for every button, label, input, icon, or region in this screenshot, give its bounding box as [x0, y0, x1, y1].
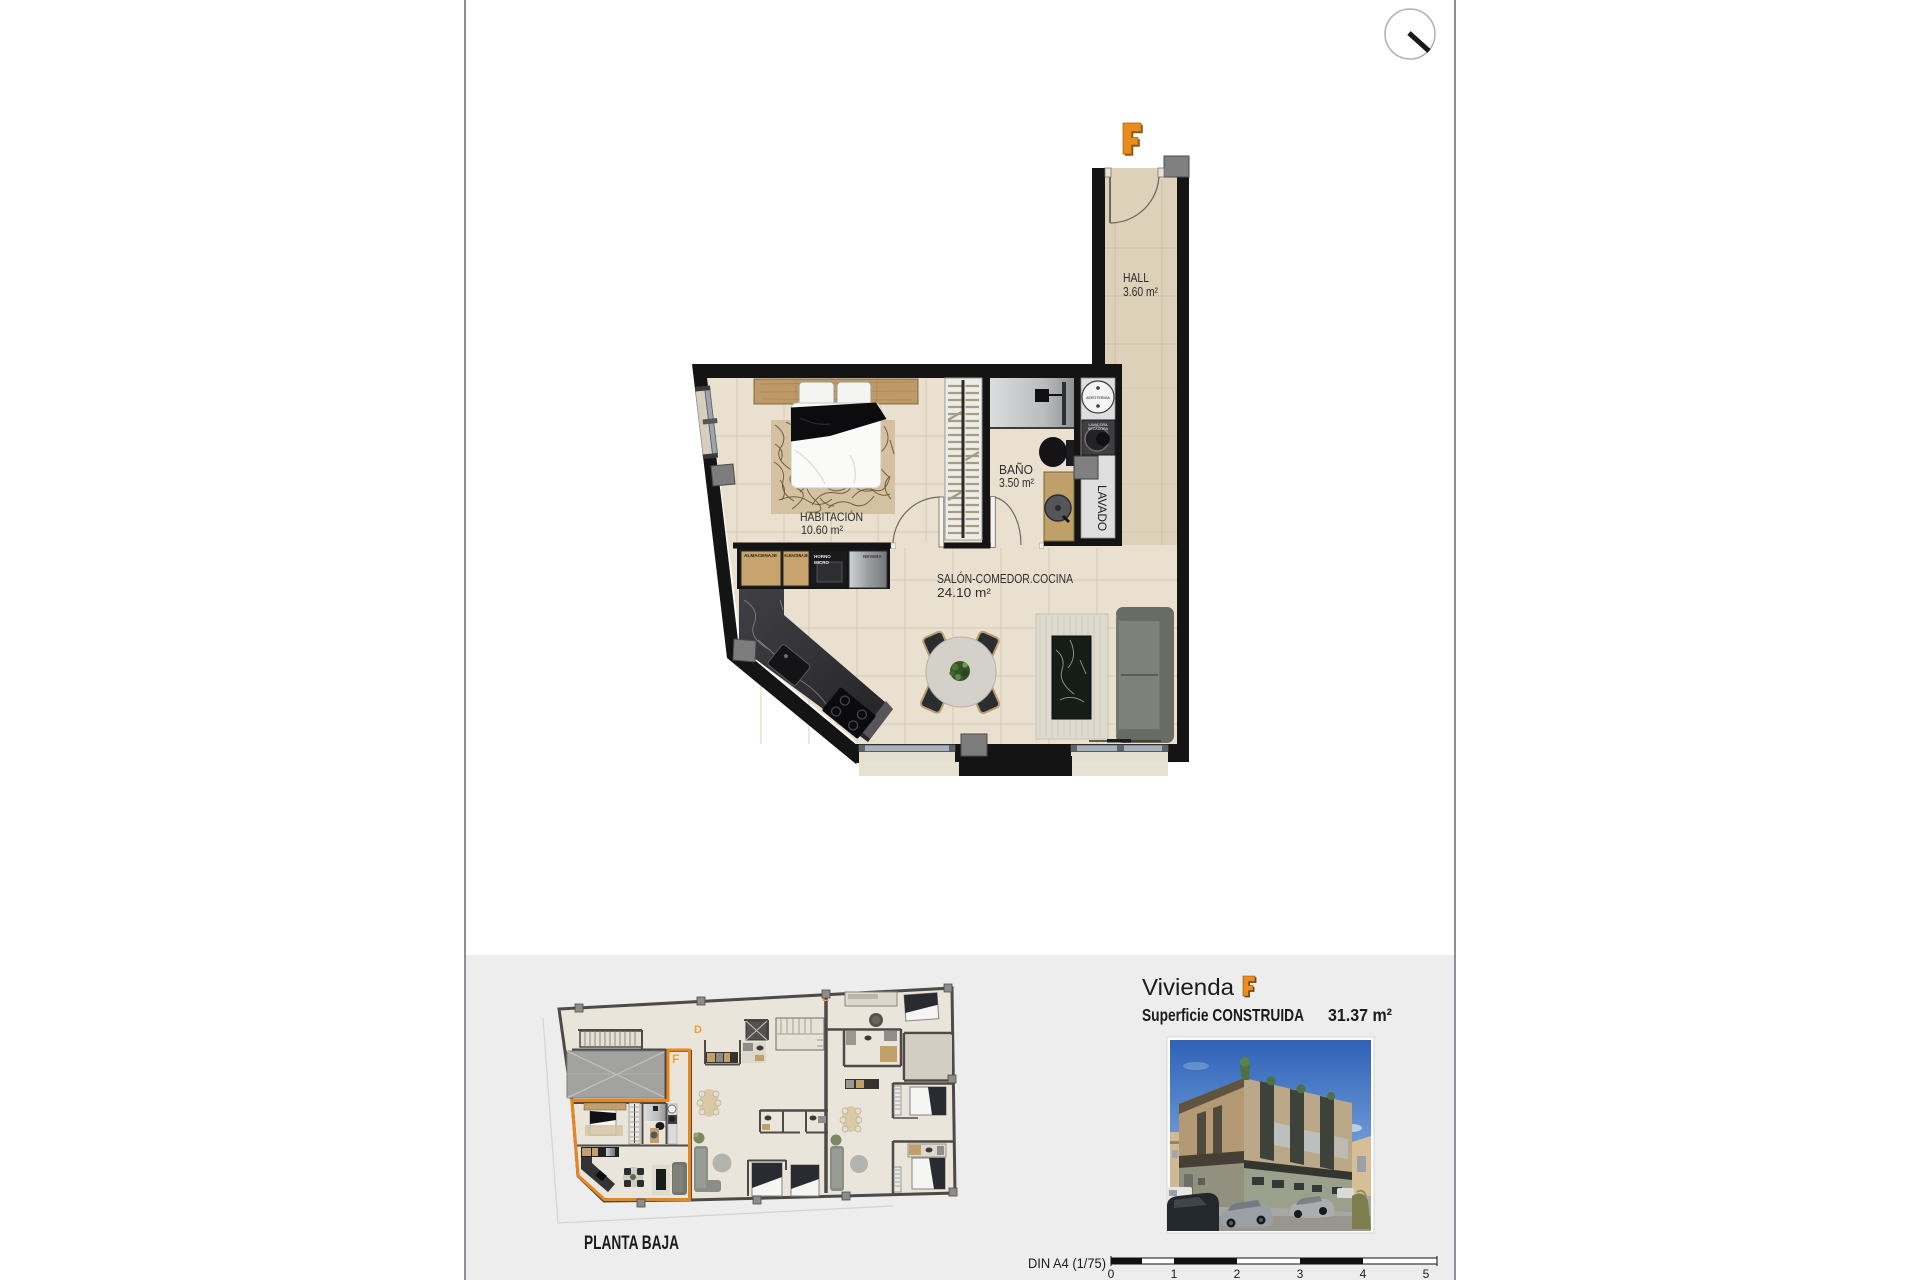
svg-text:31.37 m²: 31.37 m²: [1328, 1005, 1392, 1025]
svg-text:AEROTERMIA: AEROTERMIA: [1086, 396, 1110, 400]
svg-text:SECADORA: SECADORA: [1088, 427, 1109, 431]
svg-text:3.50 m²: 3.50 m²: [999, 475, 1035, 490]
svg-text:3: 3: [1297, 1267, 1304, 1280]
svg-text:10.60 m²: 10.60 m²: [801, 523, 843, 537]
svg-text:24.10 m²: 24.10 m²: [937, 585, 992, 600]
svg-text:ALMACENAJE: ALMACENAJE: [744, 553, 777, 558]
svg-text:DIN A4 (1/75): DIN A4 (1/75): [1028, 1255, 1106, 1271]
svg-text:Superficie CONSTRUIDA: Superficie CONSTRUIDA: [1142, 1005, 1304, 1025]
svg-text:HABITACIÓN: HABITACIÓN: [800, 509, 863, 524]
svg-text:LAVADO: LAVADO: [1095, 485, 1107, 531]
svg-text:3.60 m²: 3.60 m²: [1123, 284, 1159, 299]
svg-text:1: 1: [1171, 1267, 1178, 1280]
svg-text:Vivienda: Vivienda: [1142, 974, 1234, 1000]
svg-text:NEVERA: NEVERA: [863, 554, 883, 559]
svg-text:5: 5: [1423, 1267, 1430, 1280]
svg-text:HORNO: HORNO: [814, 554, 831, 559]
svg-text:4: 4: [1360, 1267, 1367, 1280]
svg-text:2: 2: [1234, 1267, 1241, 1280]
svg-text:D: D: [694, 1024, 702, 1036]
svg-text:SALÓN-COMEDOR.COCINA: SALÓN-COMEDOR.COCINA: [937, 571, 1073, 586]
svg-text:ALMACENAJE: ALMACENAJE: [784, 553, 808, 558]
svg-text:MICRO: MICRO: [814, 560, 829, 565]
svg-text:HALL: HALL: [1123, 270, 1149, 285]
svg-text:F: F: [672, 1052, 679, 1066]
svg-text:0: 0: [1108, 1267, 1115, 1280]
svg-text:PLANTA BAJA: PLANTA BAJA: [584, 1233, 679, 1254]
